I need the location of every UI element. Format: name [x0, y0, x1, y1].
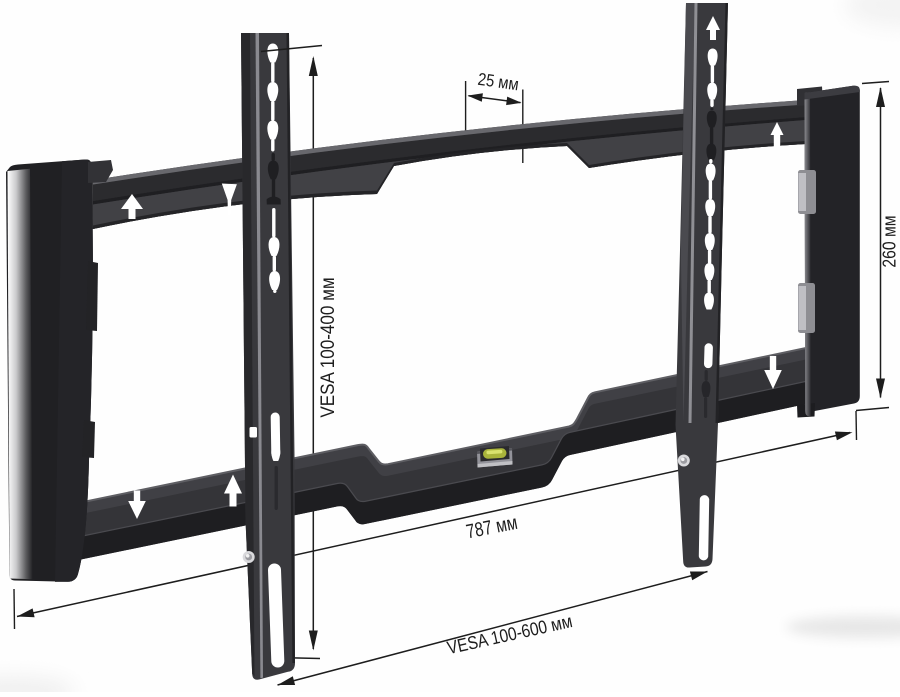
svg-text:260 мм: 260 мм [878, 215, 900, 267]
svg-text:VESA 100-400 мм: VESA 100-400 мм [317, 277, 338, 417]
